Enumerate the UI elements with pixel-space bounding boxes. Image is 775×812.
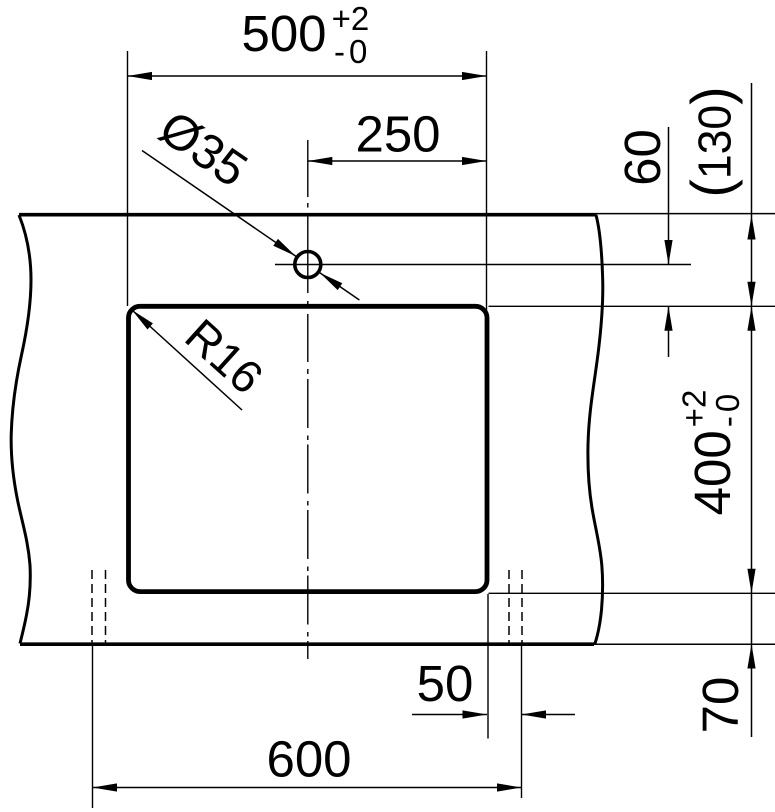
svg-text:+2: +2	[676, 390, 713, 428]
svg-text:400: 400	[684, 430, 741, 515]
svg-text:Ø35: Ø35	[150, 101, 257, 198]
svg-text:50: 50	[417, 655, 474, 712]
svg-text:60: 60	[614, 129, 671, 186]
svg-text:R16: R16	[176, 309, 274, 404]
svg-text:+2: +2	[332, 0, 370, 37]
svg-text:-0: -0	[709, 390, 746, 427]
svg-text:70: 70	[692, 677, 749, 734]
svg-text:(130): (130)	[680, 87, 744, 198]
svg-text:250: 250	[355, 106, 440, 163]
svg-text:500: 500	[241, 5, 326, 62]
svg-text:-0: -0	[334, 33, 371, 70]
svg-text:600: 600	[266, 731, 351, 788]
